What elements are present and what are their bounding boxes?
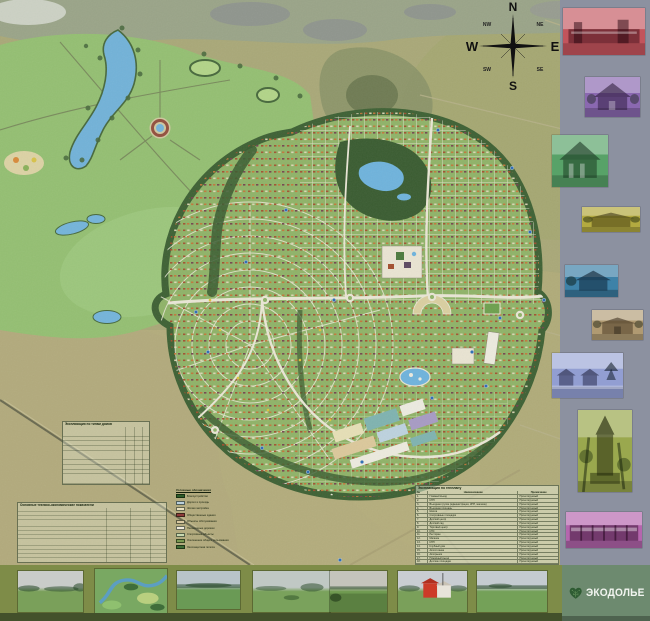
legend-swatch <box>176 539 185 543</box>
legend-items: Благоустройство Дороги и проезды Жилая з… <box>176 493 240 551</box>
landscape-photo <box>177 571 240 609</box>
legend-swatch <box>176 494 185 498</box>
sidebar-photo-cottage <box>552 135 608 187</box>
brand-name: ЭКОДОЛЬЕ <box>586 587 645 599</box>
compass-ne: NE <box>537 22 545 28</box>
legend-swatch <box>176 545 185 549</box>
legend-item: Лесозащитная полоса <box>176 544 240 550</box>
legend-swatch <box>176 526 185 530</box>
landscape-photo <box>477 571 547 612</box>
sidebar-photo-tower <box>578 410 632 492</box>
legend-swatch <box>176 501 185 505</box>
landscape-photo <box>253 571 330 612</box>
site-photos-strip <box>0 565 562 621</box>
genplan-rows: 1. Главный въезд Проектируемый 2. КПП Пр… <box>416 495 558 564</box>
heart-tree-icon <box>568 581 583 605</box>
compass-sw: SW <box>483 67 491 73</box>
landscape-photo <box>18 571 83 612</box>
house-types-sidebar <box>560 0 650 565</box>
legend-label: Спортивные объекты <box>187 533 214 536</box>
legend-label: Озеленение общего пользования <box>187 539 229 542</box>
legend-swatch <box>176 520 185 524</box>
legend-label: Объекты обслуживания <box>187 520 217 523</box>
legend-label: Лесозащитная полоса <box>187 546 215 549</box>
genplan-row: 18. Детские площадки Проектируемый <box>416 560 558 564</box>
master-plan-poster: N S W E NW NE SW SE Экспликация по типам… <box>0 0 650 621</box>
compass-n: N <box>509 0 518 14</box>
map-legend: Условные обозначения Благоустройство Дор… <box>176 488 240 555</box>
compass-w: W <box>466 39 479 54</box>
sidebar-photo-terraced-houses <box>566 512 642 548</box>
compass-s: S <box>509 79 517 93</box>
legend-swatch <box>176 533 185 537</box>
tech-econ-table: Основные технико-экономические показател… <box>17 502 167 563</box>
sidebar-photo-low-house <box>592 310 643 340</box>
legend-label: Благоустройство <box>187 495 208 498</box>
brand-logo: ЭКОДОЛЬЕ <box>562 565 650 621</box>
house-types-rows <box>63 427 149 484</box>
house-types-table: Экспликация по типам домов <box>62 421 150 485</box>
sidebar-photo-street-view <box>552 353 623 398</box>
compass-se: SE <box>537 67 544 73</box>
sidebar-photo-long-building <box>563 8 645 55</box>
tech-econ-rows <box>18 508 166 562</box>
genplan-col-name: Наименование <box>428 491 518 494</box>
red-building-photo <box>398 571 467 612</box>
sidebar-photo-cottage <box>565 265 618 297</box>
legend-swatch <box>176 507 185 511</box>
sidebar-photo-low-house <box>582 207 640 232</box>
landscape-photo <box>330 571 387 612</box>
legend-label: Жилая застройка <box>187 507 209 510</box>
legend-label: Дороги и проезды <box>187 501 209 504</box>
compass-rose: N S W E NW NE SW SE <box>463 0 563 94</box>
genplan-table: Экспликация по генплану № Наименование П… <box>415 485 559 565</box>
sidebar-photo-cottage <box>585 77 640 117</box>
aerial-photo <box>95 569 167 614</box>
genplan-col-note: Примечание <box>518 491 558 494</box>
legend-label: Пешеходные дорожки <box>187 527 215 530</box>
legend-label: Общественные здания <box>187 514 216 517</box>
genplan-col-num: № <box>416 491 428 494</box>
legend-swatch <box>176 513 185 517</box>
compass-e: E <box>551 39 560 54</box>
compass-nw: NW <box>483 22 492 28</box>
